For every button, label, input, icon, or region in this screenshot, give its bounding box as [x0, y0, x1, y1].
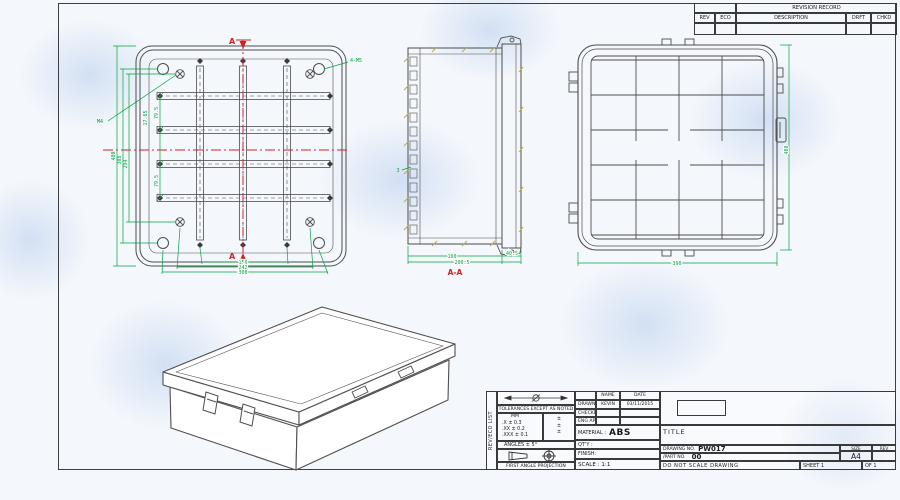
angles-tolerance: ANGLES ± 5°: [497, 441, 575, 449]
projection-label: FIRST ANGLE PROJECTION: [497, 462, 575, 470]
name-header: NAME: [596, 391, 620, 400]
part-no-row: /PART NO. 00: [660, 453, 840, 461]
dim-rear-height: 400: [784, 145, 790, 154]
engappr-label: ENG APPR: [575, 417, 596, 425]
dim-depth-lid: 40.5: [506, 251, 518, 257]
section-hatch-ticks: [404, 47, 523, 246]
size-value: A4: [840, 451, 872, 461]
revision-col-chkd: CHKD: [871, 13, 897, 23]
part-no-label: /PART NO.: [663, 455, 686, 460]
sheet-cell: SHEET 1: [800, 461, 862, 470]
front-view: [136, 46, 346, 266]
section-label-top: A: [229, 37, 236, 46]
tolerance-values: MM .X ± 0.3 .XX ± 0.2 .XXX ± 0.1: [497, 413, 543, 441]
first-angle-projection-icon: [501, 450, 571, 462]
callout-4m5: 4-M5: [350, 58, 362, 64]
tolerance-xxx: .XXX ± 0.1: [502, 433, 528, 439]
lid-ribs: [591, 56, 764, 239]
drawing-no-row: DRAWING NO. PW017: [660, 445, 840, 453]
revision-spacer: [694, 3, 736, 13]
section-view-label: A-A: [448, 268, 463, 277]
material-row: MATERIAL : ABS: [575, 425, 660, 440]
checked-date: [620, 409, 660, 417]
rev-value: [872, 451, 896, 461]
dim-rear-width: 390: [672, 261, 681, 267]
drawn-name: KEVIN: [596, 400, 620, 409]
dim-rail-spacing-top: 79.5: [154, 107, 160, 119]
revision-empty-cell: [694, 23, 715, 35]
tolerance-inch-col: ± ± ±: [543, 413, 575, 441]
dim-offset: 17.65: [143, 110, 149, 125]
approval-blank: [575, 391, 596, 400]
part-no-value: 00: [692, 453, 702, 461]
callout-m4: M4: [97, 119, 103, 125]
side-strip-text: REV/ECO LIST: [489, 411, 494, 450]
tolerance-in3: ±: [557, 430, 561, 436]
drawing-no-value: PW017: [698, 445, 725, 453]
mount-tabs: [662, 39, 694, 256]
revision-empty-cell: [736, 23, 846, 35]
material-value: ABS: [609, 428, 631, 438]
of-cell: OF 1: [862, 461, 896, 470]
revision-col-description: DESCRIPTION: [736, 13, 846, 23]
page: { "colors": { "dim": "#00a63c", "section…: [0, 0, 900, 500]
dim-style-cell: [497, 391, 575, 405]
finish-row: FINISH:: [575, 449, 660, 459]
side-view: [408, 36, 521, 256]
dim-bottom-308: 308: [238, 270, 247, 276]
rear-dimensions: 390 400: [578, 45, 792, 267]
side-strip-label: REV/ECO LIST: [486, 391, 497, 470]
checked-name: [596, 409, 620, 417]
qty-row: QT'Y :: [575, 440, 660, 449]
tolerance-header: TOLERANCES EXCEPT AS NOTED: [497, 405, 575, 413]
date-header: DATE: [620, 391, 660, 400]
rear-view: [569, 39, 786, 256]
revision-col-eco: ECO: [715, 13, 736, 23]
drawing-no-label: DRAWING NO.: [663, 447, 695, 452]
drawn-date: 03/11/2015: [620, 400, 660, 409]
revision-empty-cell: [846, 23, 871, 35]
hinge-lugs: [569, 72, 578, 223]
revision-title: REVISION RECORD: [736, 3, 897, 13]
latch-side-icon: [497, 36, 521, 256]
drawn-label: DRAWN: [575, 400, 596, 409]
wall-slots: [410, 57, 417, 234]
revision-col-rev: REV: [694, 13, 715, 23]
section-label-bottom: A: [229, 252, 236, 261]
title-label: TITLE: [660, 425, 896, 445]
title-block: REV/ECO LIST TOLERANCES EXCEPT AS NOTED …: [486, 391, 896, 470]
part-thumbnail-box: [677, 400, 726, 416]
projection-symbol-cell: [497, 449, 575, 462]
material-label: MATERIAL :: [578, 430, 606, 436]
dim-wall-thickness: 3: [396, 168, 399, 174]
dim-rail-spacing-bottom: 79.5: [154, 175, 160, 187]
revision-empty-cell: [871, 23, 897, 35]
dim-style-icon: [501, 392, 571, 404]
engappr-name: [596, 417, 620, 425]
engappr-date: [620, 417, 660, 425]
checked-label: CHECKED: [575, 409, 596, 417]
dim-depth-total: 200.5: [454, 260, 469, 266]
revision-empty-cell: [715, 23, 736, 35]
isometric-view: [163, 307, 455, 470]
do-not-scale-note: DO NOT SCALE DRAWING: [660, 461, 800, 470]
revision-record-table: REVISION RECORD REV ECO DESCRIPTION DRFT…: [694, 3, 897, 35]
scale-row: SCALE : 1:1: [575, 459, 660, 470]
dim-inner-height: 294: [123, 159, 129, 168]
revision-col-drft: DRFT: [846, 13, 871, 23]
